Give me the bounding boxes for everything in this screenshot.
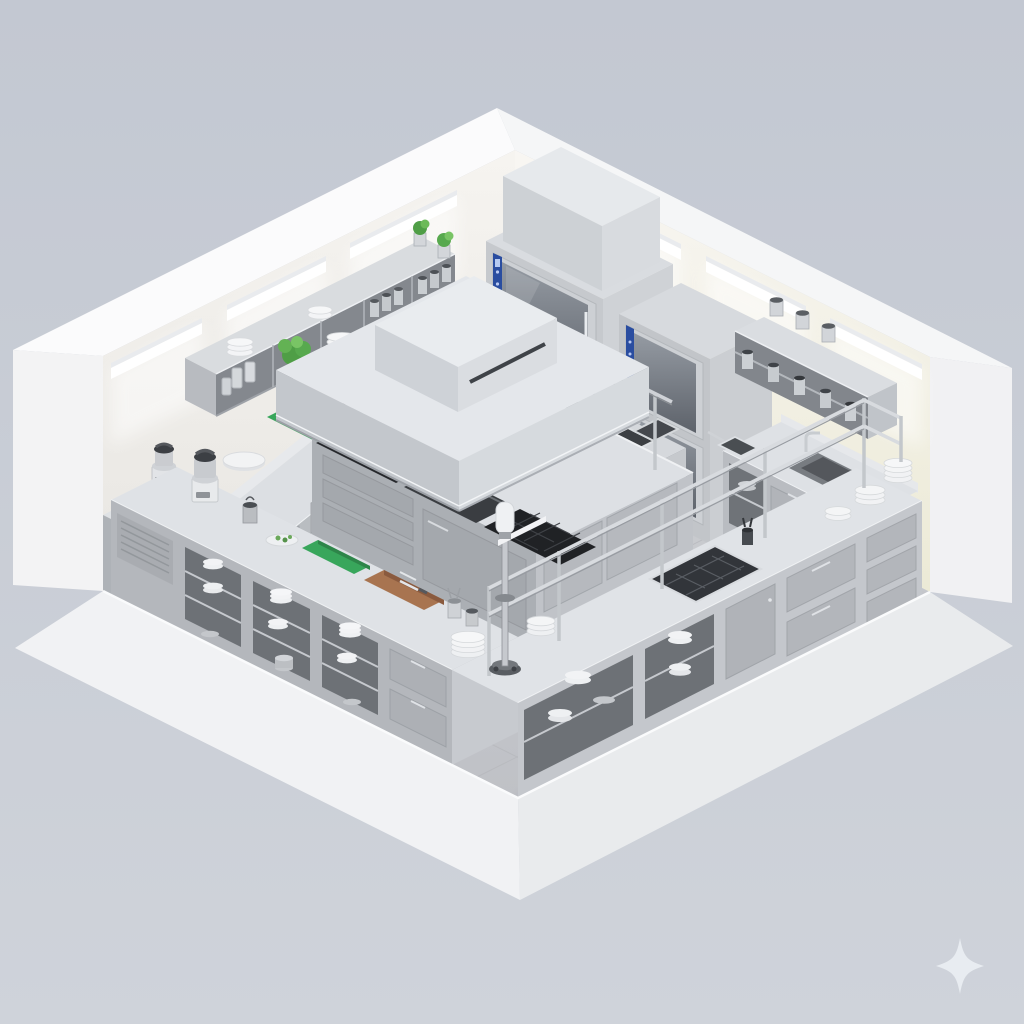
left-wall-end-cap [13, 350, 103, 591]
round-board [223, 452, 265, 471]
right-wall-end-cap [930, 357, 1012, 603]
food-processor [192, 451, 218, 503]
garnish-plate [266, 534, 298, 546]
kitchen-render [0, 0, 1024, 1024]
stand-collar [495, 594, 515, 602]
stand-head [496, 502, 514, 534]
kitchen-scene [0, 0, 1024, 1024]
plate-stack [884, 458, 912, 482]
